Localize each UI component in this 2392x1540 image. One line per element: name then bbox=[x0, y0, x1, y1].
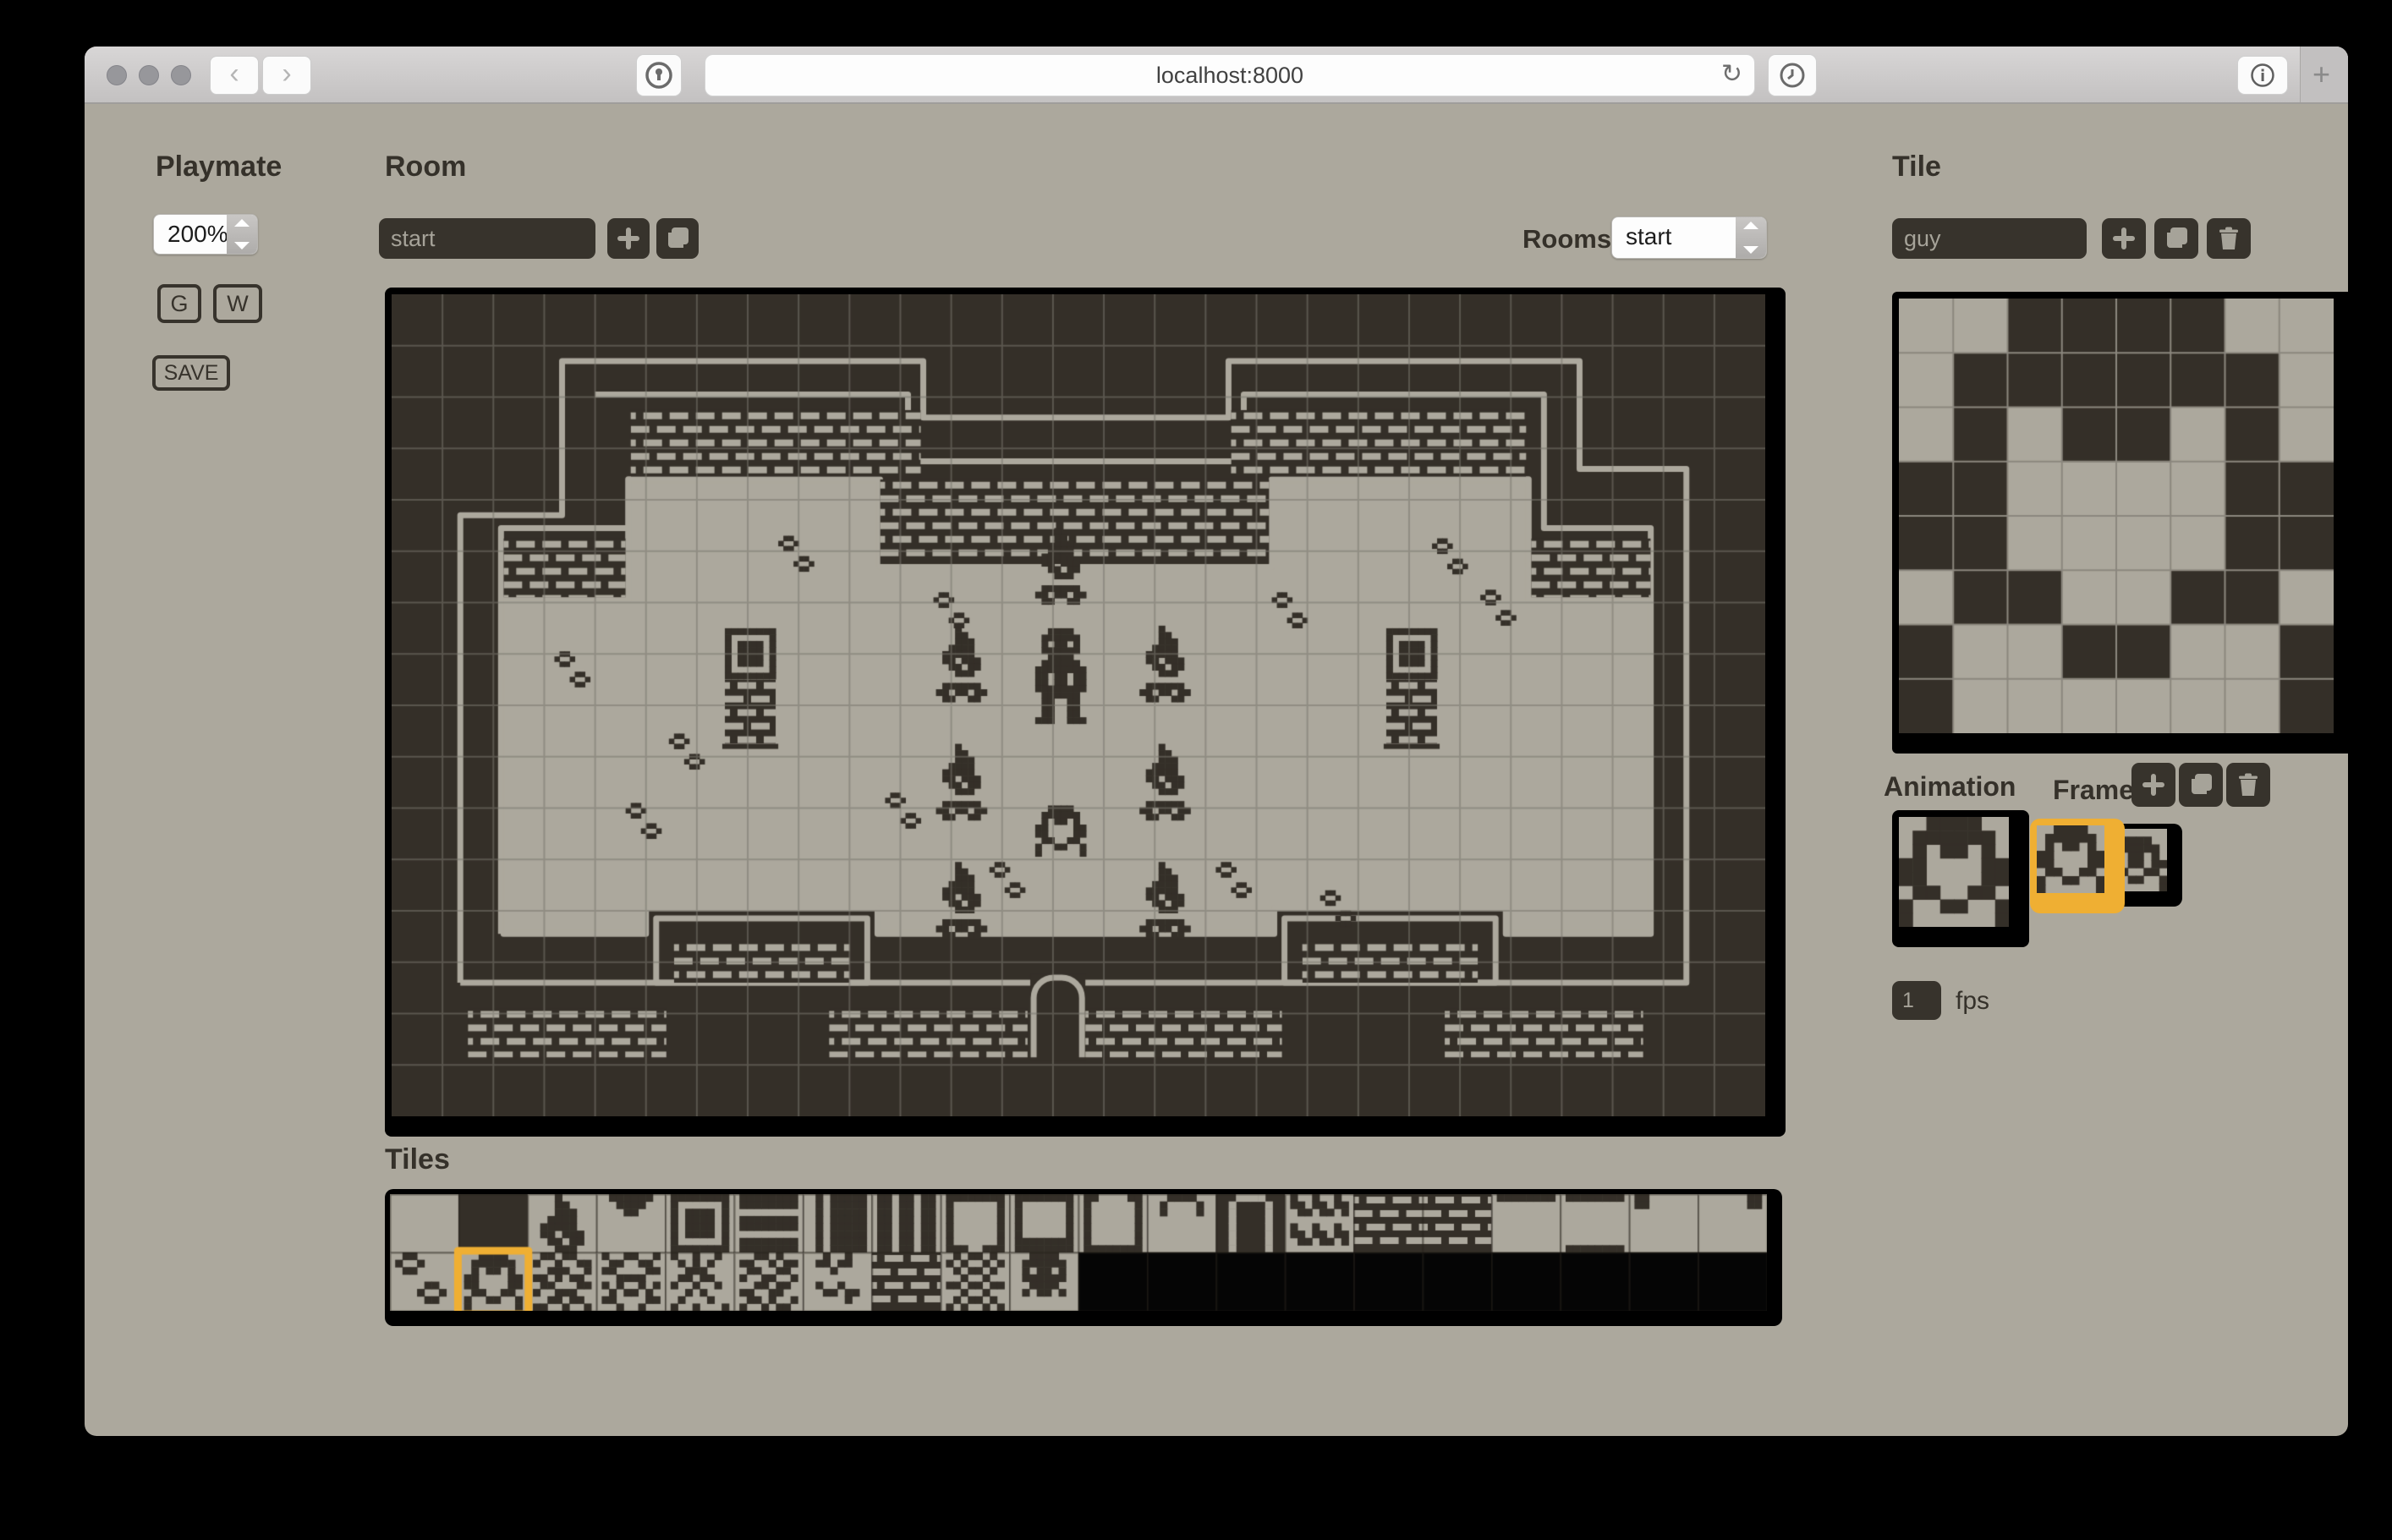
fps-input[interactable] bbox=[1892, 981, 1941, 1020]
close-window-icon[interactable] bbox=[107, 65, 127, 85]
tile-editor-frame bbox=[1892, 292, 2348, 754]
zoom-select[interactable]: 200% bbox=[153, 214, 258, 255]
zoom-window-icon[interactable] bbox=[171, 65, 191, 85]
zoom-select-value: 200% bbox=[167, 221, 228, 248]
walls-toggle-button[interactable]: W bbox=[213, 284, 262, 323]
url-text: localhost:8000 bbox=[705, 63, 1754, 89]
new-tab-area[interactable]: + bbox=[2300, 47, 2348, 102]
duplicate-frame-button[interactable] bbox=[2179, 763, 2223, 807]
new-tab-icon: + bbox=[2312, 57, 2330, 92]
grid-toggle-button[interactable]: G bbox=[157, 284, 201, 323]
tile-name-input[interactable] bbox=[1892, 218, 2087, 259]
animation-preview-frame bbox=[1892, 810, 2029, 947]
room-name-input[interactable] bbox=[379, 218, 595, 259]
tiles-panel-title: Tiles bbox=[385, 1143, 450, 1176]
page-info-button[interactable] bbox=[2237, 56, 2288, 95]
frame-1-canvas bbox=[2037, 825, 2104, 893]
history-extension-button[interactable] bbox=[1768, 54, 1817, 96]
forward-button[interactable]: › bbox=[262, 56, 311, 95]
duplicate-tile-button[interactable] bbox=[2154, 218, 2198, 259]
add-frame-button[interactable] bbox=[2131, 763, 2175, 807]
select-stepper-icon bbox=[227, 215, 257, 254]
rooms-select[interactable]: start bbox=[1611, 216, 1767, 259]
keyhole-icon bbox=[645, 61, 673, 90]
rooms-label: Rooms bbox=[1522, 224, 1611, 255]
browser-window: ‹ › localhost:8000 ↻ + bbox=[85, 47, 2348, 1436]
add-tile-button[interactable] bbox=[2102, 218, 2146, 259]
info-icon bbox=[2249, 62, 2276, 89]
tile-editor-canvas[interactable] bbox=[1899, 299, 2334, 733]
trash-icon bbox=[2236, 772, 2261, 797]
reload-icon[interactable]: ↻ bbox=[1721, 59, 1742, 89]
select-stepper-icon bbox=[1736, 217, 1766, 258]
duplicate-icon bbox=[2164, 226, 2189, 251]
password-extension-button[interactable] bbox=[636, 54, 682, 96]
plus-icon bbox=[2111, 226, 2137, 251]
url-bar[interactable]: localhost:8000 ↻ bbox=[705, 54, 1755, 96]
tile-panel-title: Tile bbox=[1892, 151, 1941, 184]
clock-icon bbox=[1778, 61, 1807, 90]
add-room-button[interactable] bbox=[607, 218, 650, 259]
duplicate-icon bbox=[665, 226, 690, 251]
room-canvas-frame bbox=[385, 288, 1786, 1137]
duplicate-room-button[interactable] bbox=[656, 218, 699, 259]
delete-frame-button[interactable] bbox=[2226, 763, 2270, 807]
plus-icon bbox=[2141, 772, 2166, 797]
delete-tile-button[interactable] bbox=[2207, 218, 2251, 259]
plus-icon bbox=[616, 226, 641, 251]
tiles-strip-frame bbox=[385, 1189, 1782, 1326]
frame-1-thumb-selected[interactable] bbox=[2030, 819, 2125, 913]
room-panel-title: Room bbox=[385, 151, 466, 184]
app-title: Playmate bbox=[156, 151, 282, 184]
forward-icon: › bbox=[282, 58, 291, 90]
duplicate-icon bbox=[2188, 772, 2214, 797]
trash-icon bbox=[2216, 226, 2241, 251]
fps-label: fps bbox=[1956, 987, 1989, 1016]
animation-title: Animation bbox=[1884, 771, 2016, 803]
room-map-canvas[interactable] bbox=[392, 294, 1765, 1116]
animation-preview-canvas bbox=[1899, 817, 2009, 927]
tiles-strip-canvas[interactable] bbox=[390, 1194, 1767, 1311]
rooms-select-value: start bbox=[1626, 223, 1671, 250]
browser-titlebar: ‹ › localhost:8000 ↻ + bbox=[85, 47, 2348, 104]
back-icon: ‹ bbox=[229, 58, 239, 90]
back-button[interactable]: ‹ bbox=[210, 56, 259, 95]
save-button[interactable]: SAVE bbox=[152, 355, 230, 391]
minimize-window-icon[interactable] bbox=[139, 65, 159, 85]
